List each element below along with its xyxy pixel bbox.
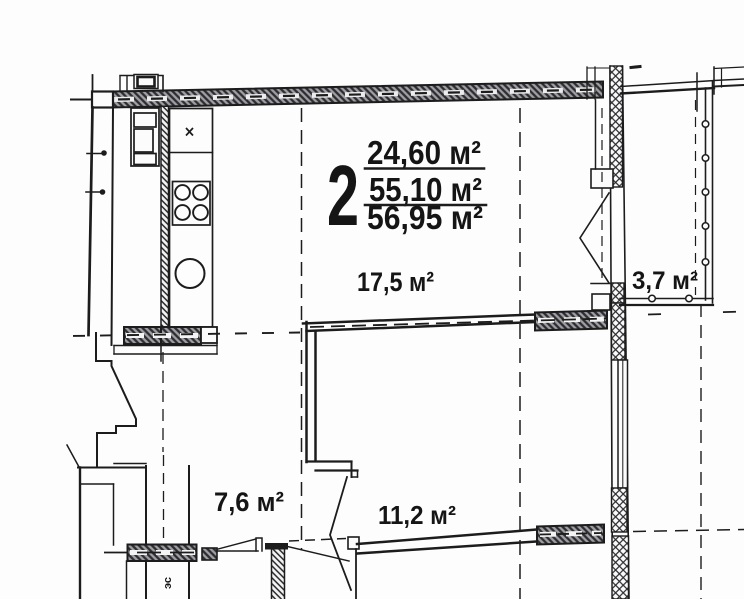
- svg-text:17,5 м²: 17,5 м²: [357, 267, 434, 297]
- svg-text:3,7 м²: 3,7 м²: [632, 267, 698, 295]
- svg-text:56,95 м²: 56,95 м²: [367, 199, 483, 236]
- svg-text:11,2 м²: 11,2 м²: [378, 500, 456, 530]
- svg-text:24,60 м²: 24,60 м²: [367, 134, 481, 171]
- svg-text:7,6 м²: 7,6 м²: [214, 487, 284, 517]
- svg-text:эс: эс: [162, 577, 174, 589]
- svg-text:2: 2: [327, 149, 359, 244]
